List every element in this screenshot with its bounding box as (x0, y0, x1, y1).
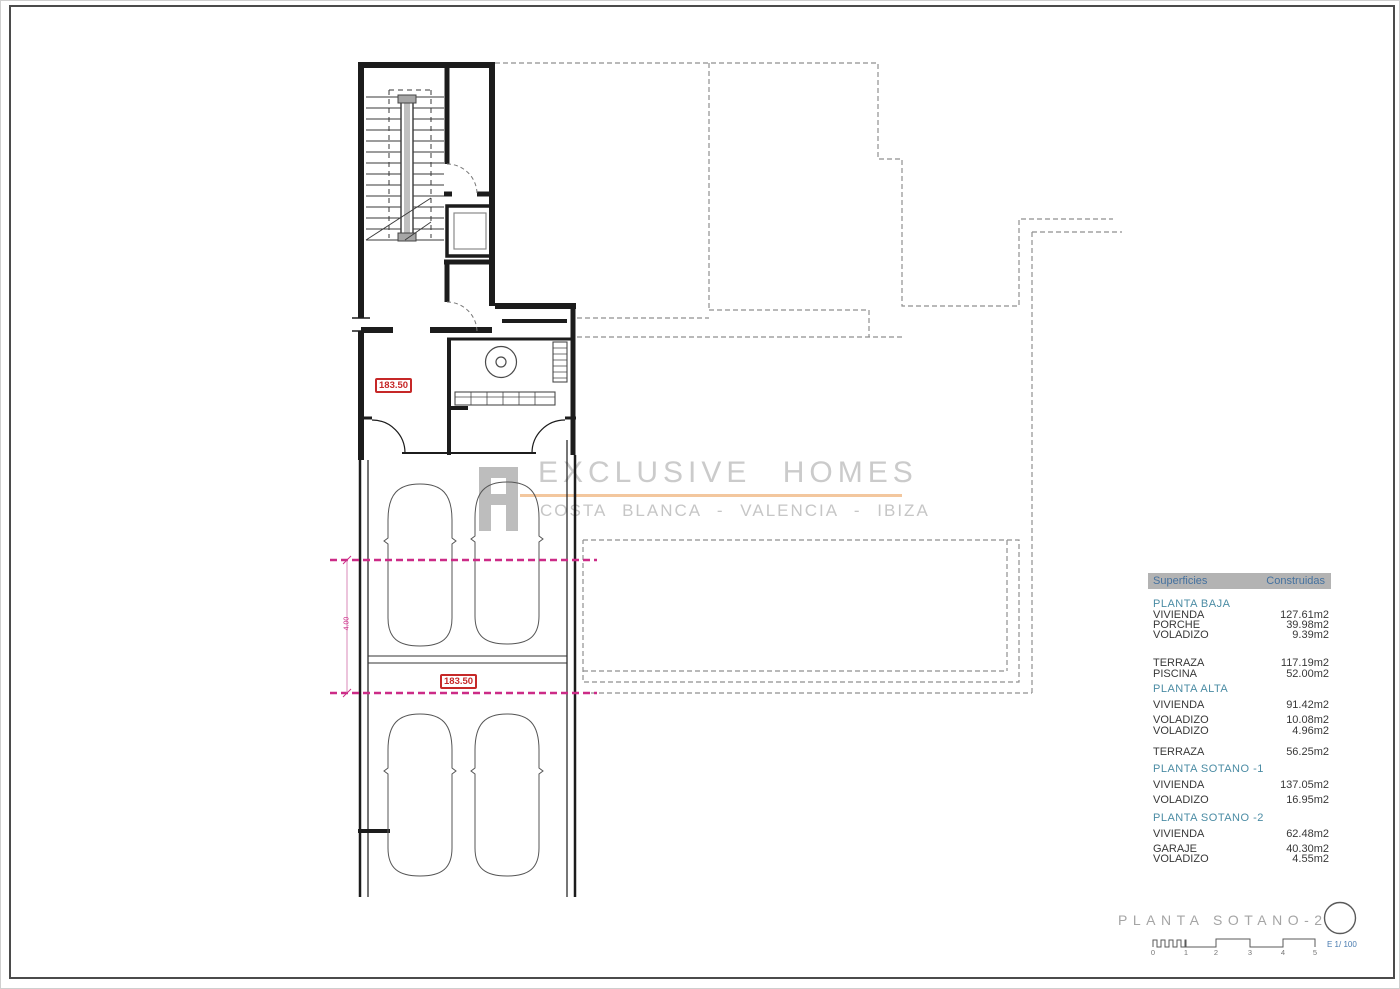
elevator-shaft (447, 206, 493, 256)
table-row: VOLADIZO16.95m2 (1148, 795, 1331, 806)
table-row: PLANTA ALTA (1148, 684, 1331, 695)
garage-floor-lines (368, 656, 567, 663)
header-superficies: Superficies (1153, 575, 1207, 587)
car-outline (471, 714, 543, 876)
table-row: VOLADIZO4.96m2 (1148, 726, 1331, 737)
floorplan-page: { "plan": { "level_labels": [ {"text": "… (0, 0, 1400, 989)
scale-tick: 0 (1148, 948, 1158, 957)
level-label: 183.50 (375, 378, 412, 393)
scale-label: E 1/ 100 (1327, 940, 1357, 949)
scale-tick: 1 (1181, 948, 1191, 957)
table-row: VIVIENDA62.48m2 (1148, 829, 1331, 840)
car-outline (471, 482, 543, 644)
table-row: VIVIENDA91.42m2 (1148, 700, 1331, 711)
scale-tick: 2 (1211, 948, 1221, 957)
table-row: VIVIENDA137.05m2 (1148, 780, 1331, 791)
scale-tick: 3 (1245, 948, 1255, 957)
scale-tick: 4 (1278, 948, 1288, 957)
graphic-scale-bar (1153, 939, 1315, 947)
plan-title: PLANTA SOTANO-2 (1118, 912, 1328, 928)
header-construidas: Construidas (1266, 575, 1325, 587)
table-row: PLANTA SOTANO -2 (1148, 813, 1331, 824)
machine-room-fixtures (455, 342, 567, 405)
table-row: VOLADIZO9.39m2 (1148, 630, 1331, 641)
table-row: TERRAZA56.25m2 (1148, 747, 1331, 758)
car-outline (384, 714, 456, 876)
car-outline (384, 484, 456, 646)
table-row: PISCINA52.00m2 (1148, 669, 1331, 680)
dimension-label: 4.00 (344, 606, 351, 642)
door-swing-arcs (447, 164, 477, 332)
level-label: 183.50 (440, 674, 477, 689)
table-row: PLANTA SOTANO -1 (1148, 764, 1331, 775)
areas-table: Superficies Construidas PLANTA BAJA VIVI… (1148, 573, 1331, 873)
areas-table-header: Superficies Construidas (1148, 573, 1331, 589)
north-circle-icon (1325, 903, 1356, 934)
scale-tick: 5 (1310, 948, 1320, 957)
round-fixture-icon (486, 347, 517, 378)
staircase (366, 90, 444, 241)
table-row: VOLADIZO4.55m2 (1148, 854, 1331, 865)
plot-boundary-dashed-lines (495, 63, 1122, 693)
